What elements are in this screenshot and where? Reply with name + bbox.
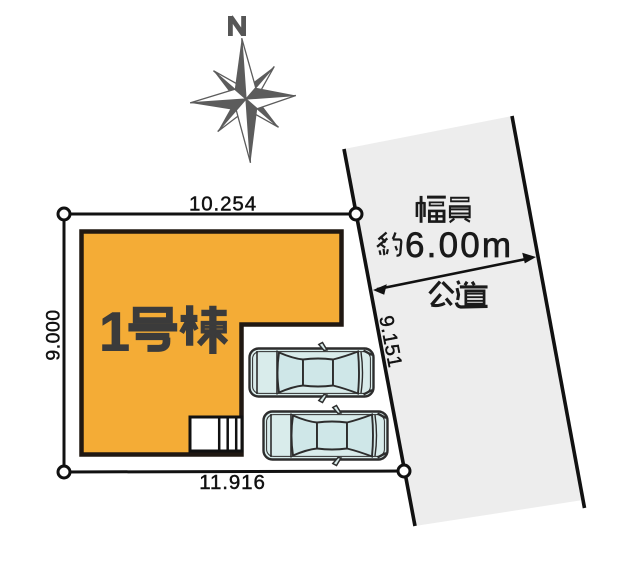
svg-text:9.000: 9.000: [43, 309, 65, 360]
svg-text:11.916: 11.916: [199, 471, 266, 494]
svg-text:10.254: 10.254: [189, 193, 257, 216]
svg-text:6.00m: 6.00m: [405, 226, 513, 265]
svg-text:1: 1: [99, 301, 130, 363]
